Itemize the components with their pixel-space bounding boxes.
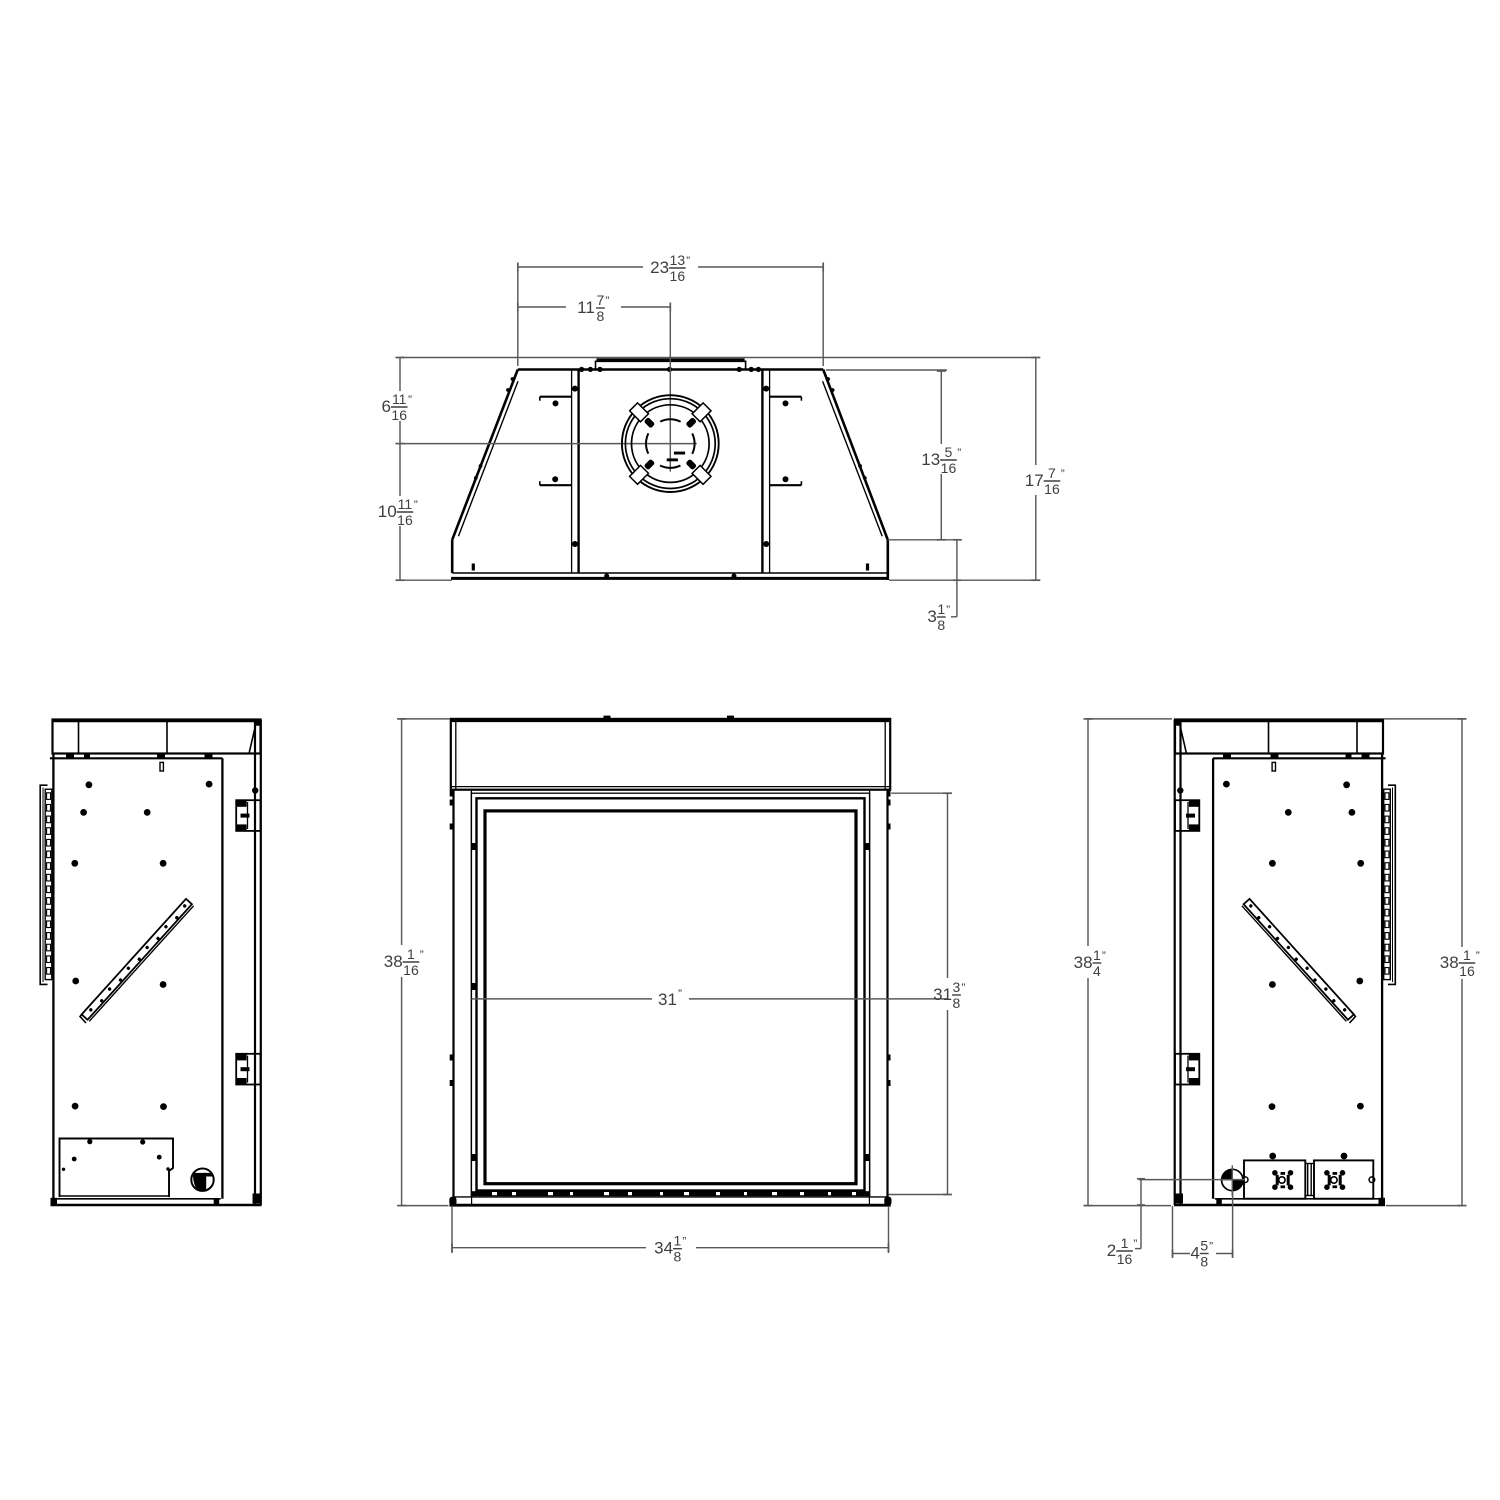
svg-text:16: 16 (391, 407, 407, 423)
svg-text:16: 16 (1459, 963, 1475, 979)
svg-text:16: 16 (1117, 1251, 1133, 1267)
svg-text:1: 1 (674, 1233, 682, 1249)
svg-text:3: 3 (927, 607, 936, 626)
svg-text:1: 1 (937, 601, 945, 617)
svg-text:”: ” (686, 254, 690, 268)
svg-text:34: 34 (654, 1239, 673, 1258)
svg-text:11: 11 (392, 391, 407, 407)
svg-text:”: ” (1133, 1237, 1137, 1251)
svg-text:1: 1 (1463, 947, 1471, 963)
svg-text:4: 4 (1190, 1244, 1199, 1263)
svg-text:”: ” (605, 294, 609, 308)
svg-text:8: 8 (937, 617, 945, 633)
svg-text:5: 5 (1200, 1238, 1208, 1254)
svg-text:”: ” (682, 1235, 686, 1249)
svg-text:8: 8 (953, 995, 961, 1011)
svg-text:38: 38 (1440, 953, 1459, 972)
svg-text:1: 1 (1121, 1235, 1129, 1251)
svg-text:”: ” (1061, 467, 1065, 481)
svg-text:8: 8 (597, 308, 605, 324)
svg-text:8: 8 (674, 1249, 682, 1265)
svg-text:”: ” (408, 393, 412, 407)
svg-text:38: 38 (1074, 953, 1093, 972)
svg-text:16: 16 (941, 460, 957, 476)
svg-text:16: 16 (403, 962, 419, 978)
svg-text:11: 11 (577, 298, 595, 317)
svg-text:”: ” (1209, 1240, 1213, 1254)
svg-text:2: 2 (1107, 1241, 1116, 1260)
svg-text:”: ” (414, 498, 418, 512)
svg-text:31: 31 (658, 990, 677, 1009)
svg-text:6: 6 (381, 397, 390, 416)
svg-text:5: 5 (945, 444, 953, 460)
svg-text:16: 16 (1044, 481, 1060, 497)
svg-text:”: ” (961, 981, 965, 995)
svg-text:11: 11 (398, 496, 413, 512)
svg-text:8: 8 (1200, 1253, 1208, 1269)
svg-text:16: 16 (670, 268, 686, 284)
svg-text:”: ” (1102, 949, 1106, 963)
svg-text:”: ” (678, 987, 682, 1001)
svg-text:38: 38 (384, 952, 403, 971)
svg-text:13: 13 (670, 252, 686, 268)
svg-text:16: 16 (397, 512, 413, 528)
svg-text:”: ” (420, 948, 424, 962)
svg-text:1: 1 (1093, 947, 1101, 963)
svg-text:1: 1 (407, 946, 415, 962)
svg-text:17: 17 (1025, 471, 1044, 490)
svg-text:23: 23 (650, 258, 669, 277)
svg-text:”: ” (1476, 949, 1480, 963)
svg-text:”: ” (946, 603, 950, 617)
svg-text:10: 10 (378, 502, 397, 521)
svg-text:7: 7 (597, 292, 605, 308)
svg-text:13: 13 (921, 450, 940, 469)
svg-text:31: 31 (933, 985, 952, 1004)
svg-text:7: 7 (1048, 465, 1056, 481)
svg-text:4: 4 (1093, 963, 1101, 979)
svg-text:”: ” (957, 446, 961, 460)
svg-text:3: 3 (953, 979, 961, 995)
